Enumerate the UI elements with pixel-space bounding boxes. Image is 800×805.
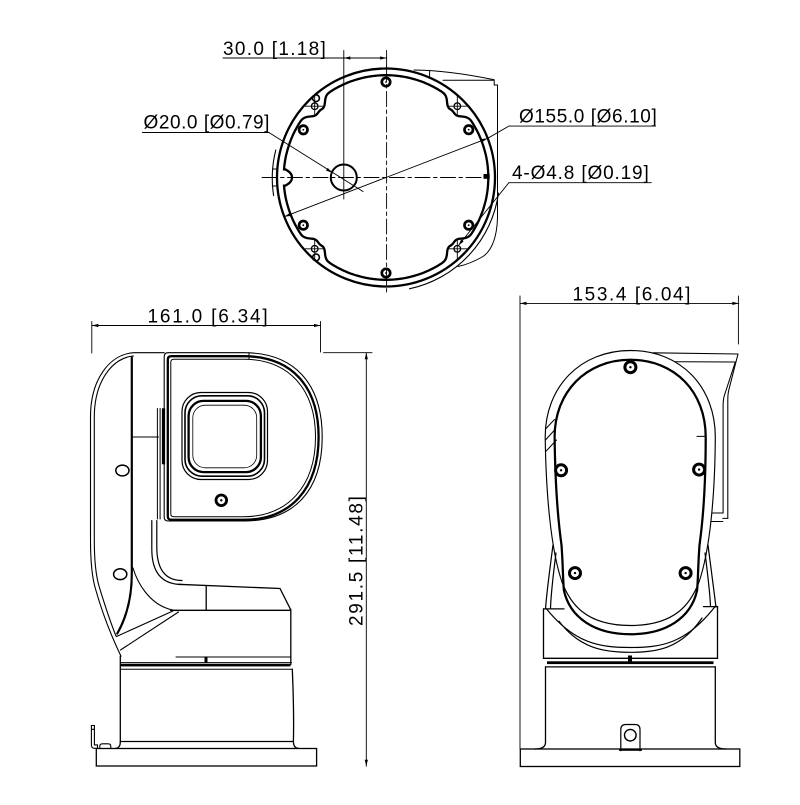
svg-text:153.4 [6.04]: 153.4 [6.04] bbox=[573, 285, 693, 306]
svg-text:4-Ø4.8 [Ø0.19]: 4-Ø4.8 [Ø0.19] bbox=[512, 163, 650, 184]
svg-text:Ø155.0 [Ø6.10]: Ø155.0 [Ø6.10] bbox=[519, 107, 657, 128]
svg-text:291.5 [11.48]: 291.5 [11.48] bbox=[347, 494, 368, 626]
svg-text:Ø20.0 [Ø0.79]: Ø20.0 [Ø0.79] bbox=[144, 113, 271, 134]
svg-text:161.0 [6.34]: 161.0 [6.34] bbox=[148, 307, 270, 328]
svg-text:30.0 [1.18]: 30.0 [1.18] bbox=[223, 39, 327, 60]
